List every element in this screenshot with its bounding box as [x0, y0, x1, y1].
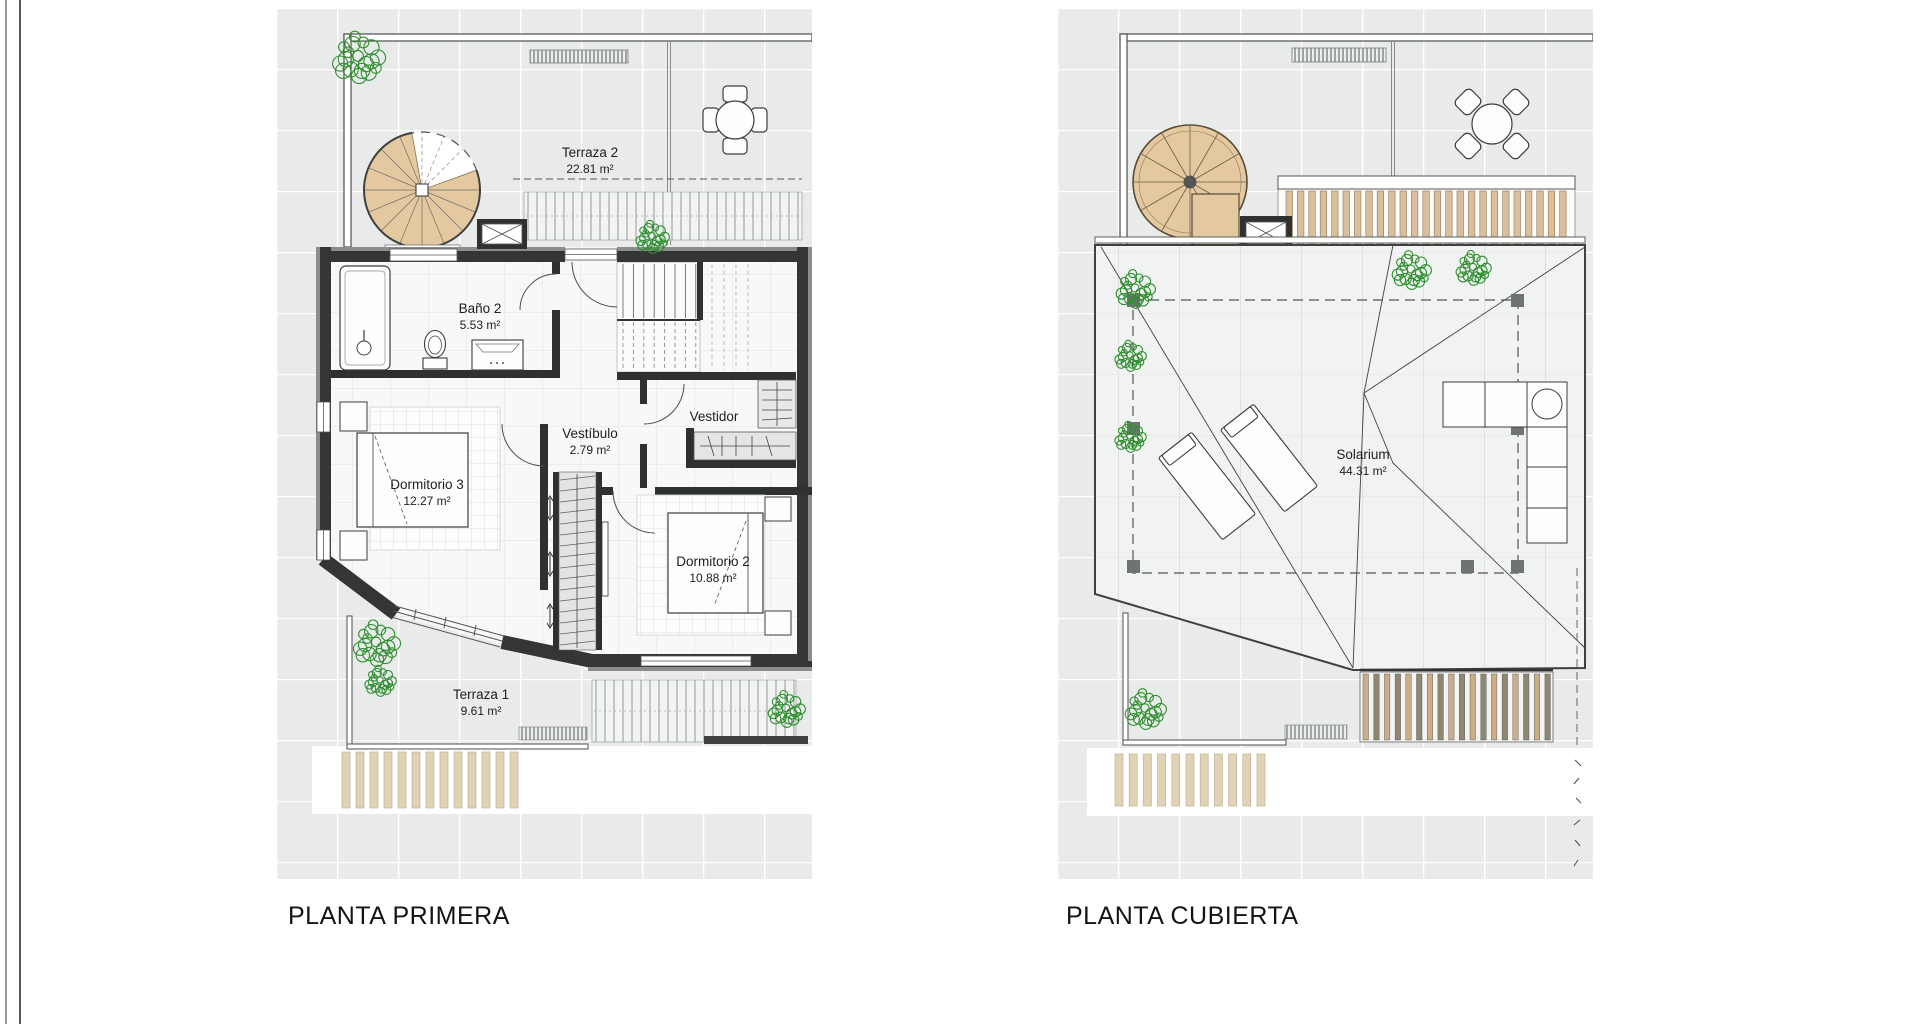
spiral-staircase [364, 132, 480, 248]
shower [340, 266, 390, 370]
vent-grille-small [519, 727, 587, 740]
floor-plan-planta-cubierta: Solarium44.31 m² [1057, 8, 1593, 879]
elevator-shaft [477, 219, 527, 249]
plan-title-planta-primera: PLANTA PRIMERA [288, 902, 510, 931]
vanity [472, 340, 523, 370]
plan-title-planta-cubierta: PLANTA CUBIERTA [1066, 902, 1299, 931]
pergola-slats-lower [592, 680, 808, 744]
sheet-border-inner [19, 0, 21, 1024]
vent-grille [1292, 48, 1386, 62]
sheet-border-outer [5, 0, 7, 1024]
toilet [423, 331, 447, 370]
bed-dormitorio-3 [340, 402, 500, 560]
vent-grille-small [1285, 725, 1347, 739]
louver-panel [1360, 670, 1553, 742]
floor-plan-planta-primera: Terraza 222.81 m² Baño 25.53 m² Vestíbul… [276, 8, 812, 879]
vent-grille [530, 50, 628, 63]
